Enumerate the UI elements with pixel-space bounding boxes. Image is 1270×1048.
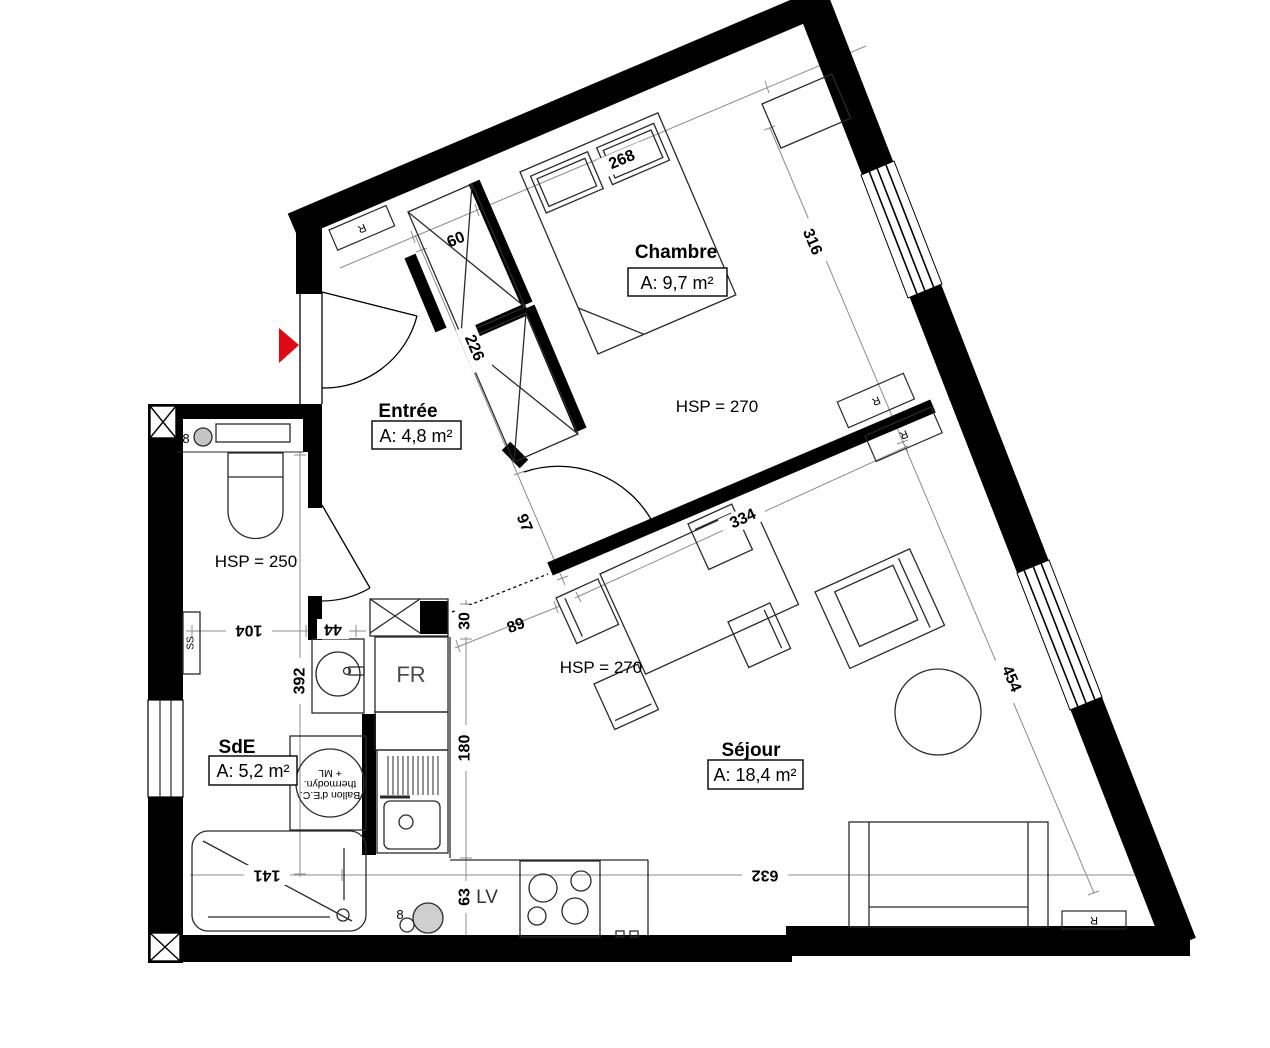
heater-label-line3: + ML (318, 767, 342, 779)
dim-63: 63 (455, 881, 475, 913)
dim-392-text: 392 (292, 668, 309, 695)
dim-60-text: 60 (444, 229, 467, 252)
dim-632: 632 (742, 865, 788, 885)
floor-plan-page: R R R R Chambre A: 9,7 m² HSP = 270 Entr… (0, 0, 1270, 1048)
sde-door-leaf (322, 505, 370, 588)
kitchen-sink-unit (377, 750, 448, 853)
hob (520, 861, 600, 937)
radiator-sejour-2-label: R (1090, 914, 1098, 926)
floor-plan-svg: R R R R Chambre A: 9,7 m² HSP = 270 Entr… (0, 0, 1270, 1048)
pillow-left (531, 152, 604, 213)
washbasin (316, 652, 360, 696)
sejour-area: A: 18,4 m² (713, 765, 796, 785)
shower-drain (337, 909, 349, 921)
entry-door-swing (322, 316, 417, 388)
wall-closet-2 (410, 256, 441, 330)
burner-1 (529, 874, 557, 902)
kitchen (370, 599, 648, 937)
burner-4 (562, 898, 588, 924)
dim-30: 30 (455, 605, 475, 637)
bed-fold-line (578, 288, 644, 354)
dim-334: 334 (718, 500, 768, 537)
dim-180-text: 180 (457, 735, 474, 762)
dim-63-text: 63 (457, 888, 474, 906)
wall-right-diagonal (812, 0, 1180, 944)
wall-bottom-right (786, 926, 1190, 956)
basin-tap (349, 667, 364, 675)
dim-89: 89 (505, 615, 528, 637)
entry-door-leaf (322, 292, 417, 316)
dim-141: 141 (244, 865, 290, 885)
soil-pipe (194, 428, 212, 446)
kitchen-closet-cross (370, 599, 420, 633)
chambre-door-swing (524, 466, 652, 521)
sde-hsp: HSP = 250 (215, 552, 297, 571)
appliance-labels: FR LV 8 8 SS Ballon d'E.C. thermodyn. + … (182, 431, 498, 922)
fridge-label: FR (396, 662, 425, 687)
drainer-lines (388, 756, 438, 795)
wall-chambre-sejour (550, 406, 933, 569)
chambre-hsp: HSP = 270 (676, 397, 758, 416)
entree-title: Entrée (378, 401, 437, 422)
dim-632-text: 632 (752, 867, 779, 884)
vanity-outline (312, 639, 364, 713)
pillow-left-inner (537, 158, 597, 206)
floor-drain (400, 903, 443, 933)
radiator-entree-label: R (356, 221, 368, 235)
sde-door-swing (322, 588, 370, 601)
dim-141-text: 141 (254, 867, 281, 884)
window-left-wall (148, 700, 183, 797)
chambre-title: Chambre (635, 242, 717, 263)
dishwasher-label: LV (476, 887, 498, 908)
dim-316: 316 (794, 217, 830, 267)
hob-outline (520, 861, 600, 937)
dim-44: 44 (317, 619, 349, 639)
vanity (312, 639, 364, 713)
oven-box (375, 712, 448, 750)
sink-drain (399, 815, 413, 829)
chambre-door-leaf (550, 521, 652, 567)
dim-89-text: 89 (505, 615, 528, 637)
entree-area: A: 4,8 m² (379, 426, 452, 446)
dim-392: 392 (290, 658, 310, 704)
dim-44-text: 44 (324, 621, 342, 638)
room-sejour-furniture (556, 504, 1048, 927)
water-heater-label: Ballon d'E.C. thermodyn. + ML (300, 767, 360, 801)
dim-97: 97 (509, 504, 540, 541)
radiator-chambre-label: R (870, 393, 882, 407)
dim-60: 60 (444, 229, 467, 252)
wall-kitchen-closet-block (420, 601, 448, 634)
chambre-area: A: 9,7 m² (640, 273, 713, 293)
burner-2 (571, 871, 591, 891)
chair-left (556, 579, 619, 644)
round-rug (895, 669, 981, 755)
dim-line-top (340, 46, 866, 268)
wall-closet-4 (529, 307, 581, 430)
entry-arrow-icon (279, 328, 299, 363)
sejour-title: Séjour (721, 740, 781, 761)
dim-180: 180 (455, 725, 475, 771)
wall-sde-kitchen-1 (308, 452, 322, 508)
sejour-hsp: HSP = 270 (560, 658, 642, 677)
wall-sde-top-right-block (303, 404, 322, 452)
dim-30-text: 30 (457, 612, 474, 630)
sde-pipe-label: 8 (182, 431, 189, 446)
sde-title: SdE (219, 737, 256, 758)
walls (148, 0, 1190, 963)
wall-top-diagonal (293, 2, 820, 226)
dim-104: 104 (226, 620, 272, 640)
dim-104-text: 104 (236, 622, 263, 639)
room-sde-fixtures (177, 424, 366, 931)
towel-rail-label: SS (186, 636, 197, 650)
wall-entry-pier (296, 218, 322, 294)
toilet-bowl (228, 453, 283, 539)
sde-area: A: 5,2 m² (216, 761, 289, 781)
kitchen-pipe-label: 8 (396, 907, 403, 922)
drain-pipe-large (413, 903, 443, 933)
radiator-sejour-1-label: R (898, 427, 910, 441)
wall-bottom-left (148, 935, 792, 962)
armchair (815, 549, 944, 669)
dim-454: 454 (993, 654, 1029, 704)
wc-cistern-shelf (216, 424, 290, 442)
burner-3 (528, 907, 546, 925)
